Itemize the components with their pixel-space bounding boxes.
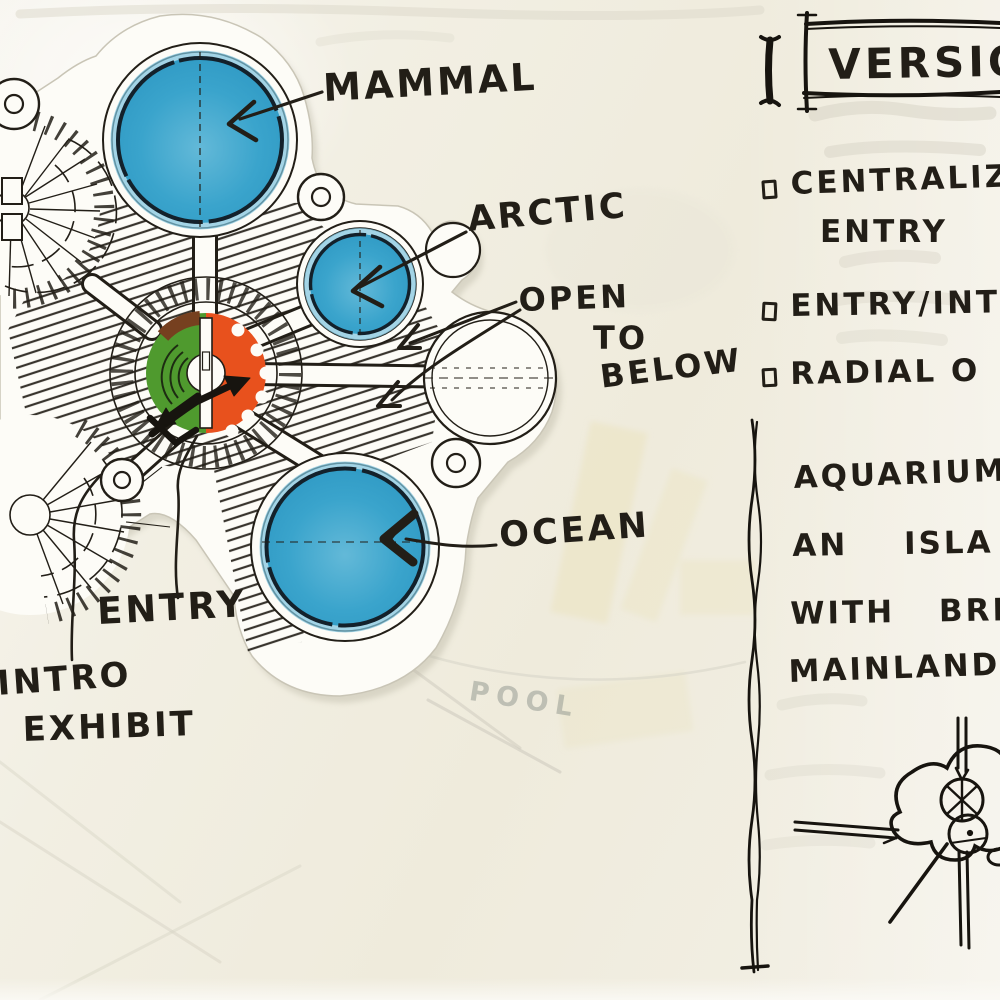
panel-note-with-bridge: WITH BRID: [790, 592, 1000, 632]
bridge-line: [795, 822, 898, 830]
i-beam-mark: [761, 37, 779, 105]
open-to-below-court: [424, 312, 556, 444]
panel-bullet1-line2: ENTRY: [820, 214, 948, 250]
sketch-page: MAMMAL ARCTIC OPEN TO BELOW OCEAN ENTRY …: [0, 0, 1000, 1000]
bullet-square-icon: [762, 368, 778, 388]
panel-bullet2-line1: ENTRY/INT: [790, 284, 1000, 324]
paper-edge: [0, 978, 1000, 1000]
panel-note-mainland: MAINLAND: [788, 647, 1000, 690]
panel-title-version: VERSION: [828, 36, 1000, 89]
mammal-tank: [103, 43, 297, 237]
label-entry: ENTRY: [96, 582, 248, 633]
label-exhibit: EXHIBIT: [22, 704, 197, 750]
label-open-to-below-line2: TO: [593, 319, 648, 357]
bullet-square-icon: [762, 302, 778, 322]
panel-bullet3-line1: RADIAL O: [790, 353, 981, 392]
section-divider-wavy-line: [742, 420, 768, 972]
ocean-tank: [251, 453, 439, 641]
island-sketch: [795, 718, 1000, 948]
panel-note-an-island: AN ISLA: [792, 524, 994, 564]
label-open-to-below-line1: OPEN: [518, 277, 631, 319]
panel-bullet1-line1: CENTRALIZ: [790, 158, 1000, 202]
bullet-square-icon: [761, 179, 777, 199]
plan-drawing: [0, 0, 1000, 1000]
panel-note-aquarium: AQUARIUM: [793, 453, 1000, 496]
